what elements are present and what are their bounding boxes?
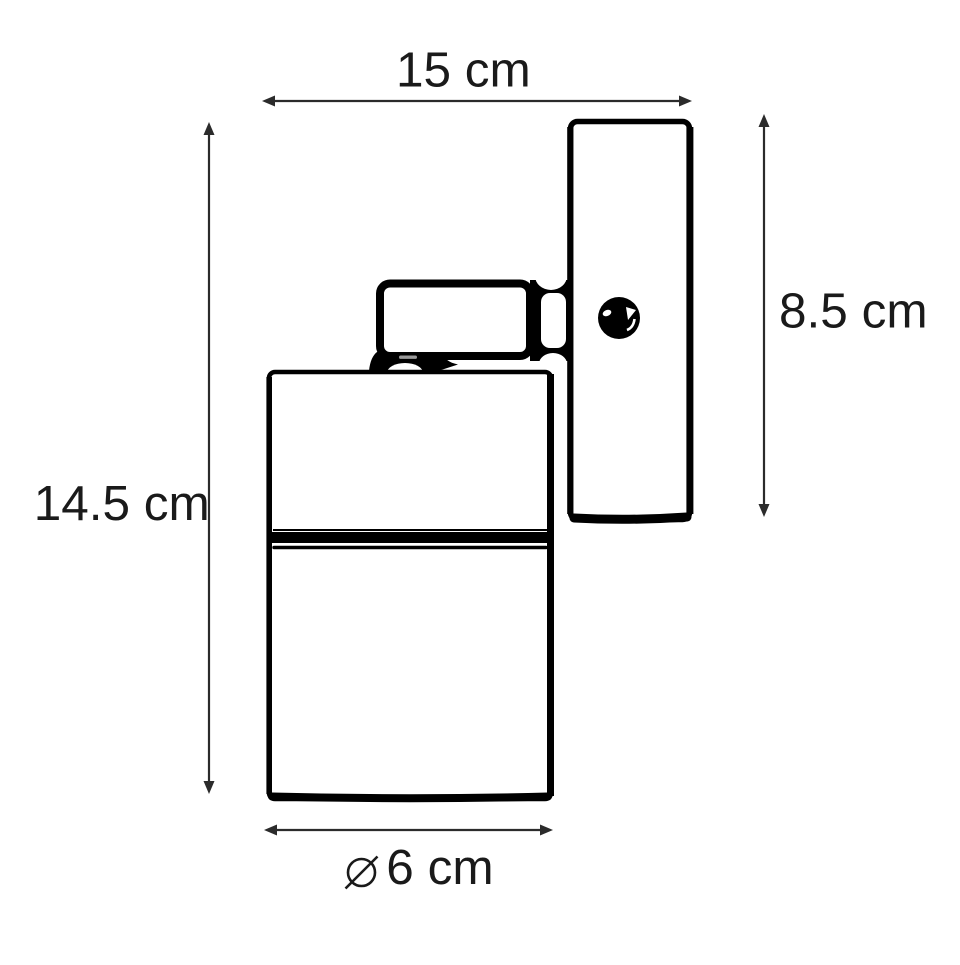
svg-text:15 cm: 15 cm [396, 43, 531, 98]
svg-text:6 cm: 6 cm [386, 840, 493, 895]
svg-text:8.5 cm: 8.5 cm [779, 284, 928, 339]
svg-text:14.5 cm: 14.5 cm [34, 476, 210, 531]
